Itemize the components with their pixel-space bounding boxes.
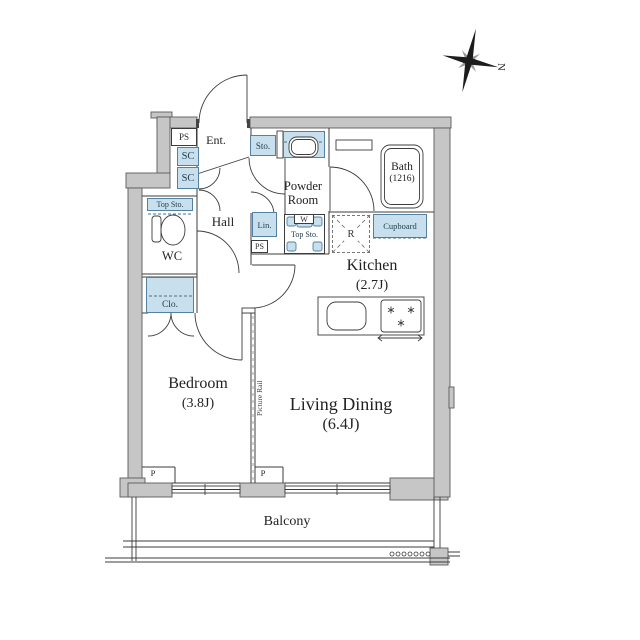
wall-top [250, 117, 451, 128]
stove [381, 300, 421, 332]
compass-north-label: N [494, 60, 506, 74]
washer-top-storage-label: Top Sto. [291, 230, 318, 239]
room-label-living-dining-size: (6.4J) [261, 416, 421, 434]
entrance-door [199, 75, 247, 123]
toilet-bowl [161, 215, 185, 245]
shoe-closet-upper: SC [177, 147, 199, 166]
closet-label: Clo. [162, 300, 178, 310]
wall-upper-left-vertical [157, 117, 170, 174]
closet: Clo. [146, 277, 194, 313]
wall-flag-top-left [151, 112, 172, 118]
stove-burner-icons [388, 307, 414, 327]
room-label-balcony: Balcony [257, 514, 317, 530]
shoe-closet-doors [199, 168, 220, 211]
bedroom-window [172, 486, 240, 493]
wc-top-storage: Top Sto. [147, 198, 193, 211]
powder-room-line2: Room [273, 193, 333, 207]
wall-bottom-right-chunk [390, 478, 448, 500]
washer-w-label: W [300, 215, 308, 224]
shoe-closet-lower-label: SC [182, 173, 195, 184]
wall-bottom-left-corner [120, 478, 145, 497]
shoe-closet-lower: SC [177, 167, 199, 189]
balcony-rail-inner [123, 541, 434, 547]
shoe-closet-upper-label: SC [182, 151, 195, 162]
room-label-wc: WC [152, 249, 192, 263]
pillar-label-living: P [256, 469, 270, 479]
floor-plan-base-layer [0, 0, 640, 640]
washer-w-chip: W [294, 214, 314, 224]
pillar-label-bedroom: P [146, 469, 160, 479]
balcony-right-partition [434, 497, 440, 548]
room-label-bedroom: Bedroom [158, 375, 238, 393]
wall-right-pilaster [449, 387, 454, 408]
wall-top-left [157, 117, 197, 128]
room-label-hall: Hall [203, 215, 243, 230]
counter-dimension-arrow [378, 335, 422, 341]
wall-left-step [126, 173, 170, 188]
powder-room-line1: Powder [273, 179, 333, 193]
bath-door [330, 167, 374, 211]
balcony-drain-holes [390, 552, 430, 556]
bedroom-door [195, 313, 242, 360]
living-window [285, 486, 390, 493]
kitchen-sink [327, 302, 366, 330]
wall-bottom-middle-chunk [240, 483, 285, 497]
balcony-right-tick [448, 552, 460, 556]
room-label-kitchen-size: (2.7J) [332, 278, 412, 294]
picture-rail-label: Picture Rail [256, 369, 264, 427]
living-door [252, 265, 295, 308]
refrigerator-label: R [347, 229, 354, 240]
pipe-shaft-small: PS [251, 240, 268, 253]
balcony-rail-outer [105, 558, 450, 562]
balcony-left-partition [132, 497, 136, 561]
pipe-shaft-small-label: PS [255, 242, 264, 251]
wall-left [128, 188, 142, 483]
floor-plan: PS SC SC Top Sto. Clo. Sto. Lin. PS Cupb… [0, 0, 640, 640]
room-label-entrance: Ent. [196, 134, 236, 147]
window-center-ticks [205, 484, 337, 495]
washbasin-counter [283, 131, 325, 158]
refrigerator-chip: R [344, 228, 358, 241]
balcony-right-pier [430, 548, 448, 565]
room-label-bedroom-size: (3.8J) [158, 396, 238, 412]
linen-storage: Lin. [252, 212, 277, 237]
toilet-tank [152, 216, 161, 242]
entrance-jambs [196, 119, 250, 128]
entry-storage: Sto. [250, 135, 276, 156]
floor-plan-detail-layer [0, 0, 640, 640]
linen-storage-label: Lin. [258, 220, 272, 230]
wc-top-storage-label: Top Sto. [157, 200, 184, 209]
pipe-shaft-top-label: PS [179, 132, 189, 142]
compass-minor-star [451, 43, 487, 79]
entry-storage-label: Sto. [256, 141, 270, 151]
cupboard-label: Cupboard [383, 221, 417, 231]
wc-door [197, 231, 239, 273]
wall-bottom-left-chunk [128, 483, 172, 497]
cupboard: Cupboard [373, 214, 427, 238]
toilet [152, 215, 185, 245]
pipe-shaft-top: PS [171, 128, 197, 146]
room-label-bath-size: (1216) [382, 174, 422, 185]
windows [172, 484, 390, 495]
closet-doors [148, 313, 194, 336]
kitchen-counter [318, 297, 424, 335]
room-label-living-dining: Living Dining [261, 394, 421, 414]
wall-right [434, 128, 450, 497]
entry-step-line [197, 157, 249, 174]
kitchen-fixtures [318, 297, 424, 341]
room-label-bath: Bath [382, 161, 422, 174]
room-label-powder-room: Powder Room [273, 179, 333, 207]
washer-top-storage-band: Top Sto. [285, 228, 324, 240]
wall-bedroom-door-jamb [242, 308, 255, 313]
bath-counter [336, 140, 372, 150]
room-label-kitchen: Kitchen [332, 257, 412, 275]
